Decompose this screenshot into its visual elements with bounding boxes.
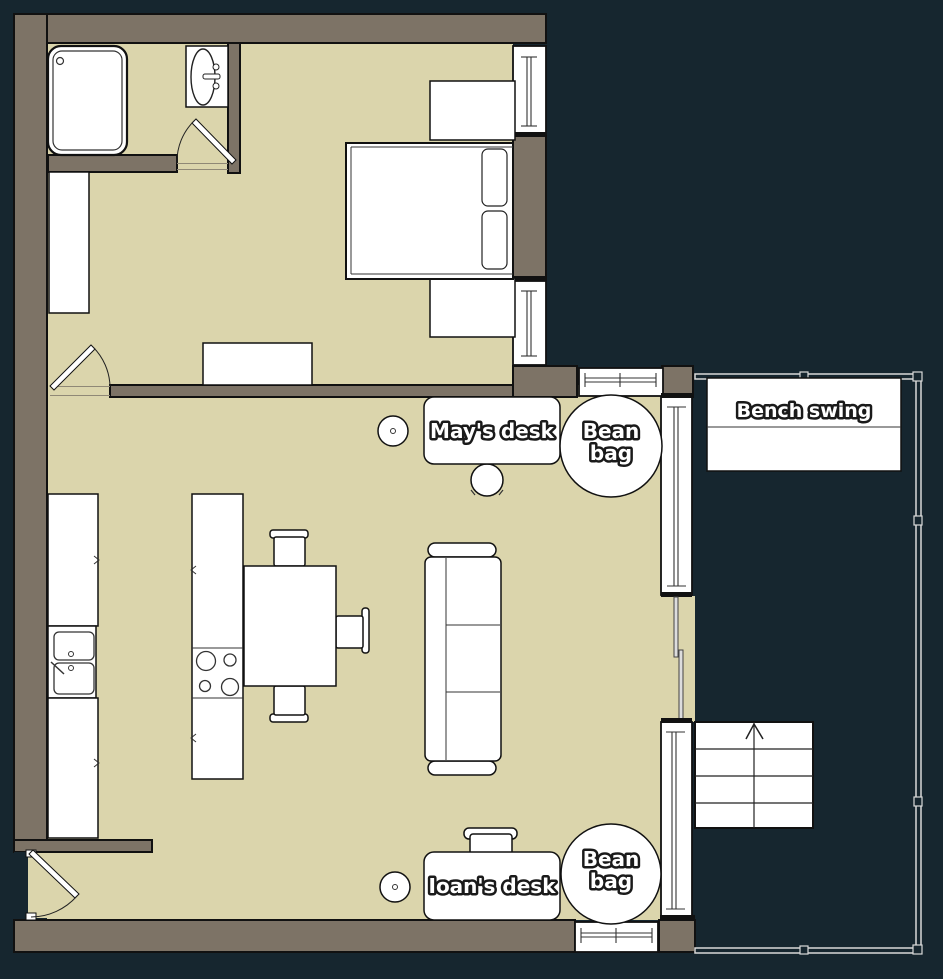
wardrobe[interactable] [49, 172, 89, 313]
bedroom-east-wall-mid [513, 136, 546, 280]
sink-drain [69, 652, 74, 657]
shower[interactable] [48, 46, 127, 155]
stool-dot [391, 429, 396, 434]
bean-bag-bottom[interactable]: Bean bag [561, 824, 661, 924]
dining-table[interactable] [244, 566, 336, 686]
stool-dot [393, 885, 398, 890]
desk-chair-top[interactable] [471, 464, 503, 496]
burner [224, 654, 236, 666]
tap-knob [213, 64, 219, 70]
dresser[interactable] [203, 343, 312, 385]
bedroom-window-1 [513, 46, 546, 134]
bedroom-southeast-block [513, 366, 577, 397]
island-stove[interactable] [191, 494, 243, 779]
left-wall [14, 14, 47, 852]
window-cap [660, 915, 695, 921]
bean-bag-label-line1: Bean [583, 419, 640, 443]
sofa[interactable] [425, 543, 501, 775]
entry-threshold-outside [14, 852, 28, 918]
chair-top[interactable] [270, 530, 308, 566]
pillow [482, 149, 507, 206]
tap-knob [213, 83, 219, 89]
railing-post [914, 797, 922, 806]
bench-swing[interactable]: Bench swing [707, 378, 901, 471]
window-cap [513, 276, 546, 281]
northeast-corner-block [662, 366, 693, 397]
window-cap [661, 718, 692, 723]
railing-post [914, 516, 922, 525]
sofa-armrest [428, 761, 496, 775]
faucet-handle [203, 74, 220, 79]
kitchen-sink[interactable] [48, 626, 96, 698]
nightstand-bottom[interactable] [430, 278, 515, 337]
sink-basin [54, 632, 94, 660]
railing-post [913, 945, 922, 954]
burner [197, 652, 216, 671]
chair-bottom[interactable] [270, 686, 308, 722]
burner [222, 679, 239, 696]
window-cap [661, 592, 692, 597]
ioans-desk-label[interactable]: Ioan's desk [429, 874, 557, 898]
nightstand-top[interactable] [430, 81, 515, 140]
window-cap [513, 132, 546, 137]
southeast-corner-block [659, 920, 695, 952]
floor-plan-svg: May's desk Bean bag Ioan's desk Bean bag [0, 0, 943, 979]
pillow [482, 211, 507, 269]
railing-post [913, 372, 922, 381]
bedroom-window-2 [513, 281, 546, 365]
top-wall [14, 14, 546, 43]
burner [200, 681, 211, 692]
counter-lower[interactable] [48, 698, 98, 838]
sink-drain [69, 666, 74, 671]
shower-drain [57, 58, 64, 65]
sink-basin [54, 663, 94, 694]
bathroom-sink[interactable] [186, 46, 228, 107]
bean-bag-label-line2: bag [590, 441, 632, 465]
bean-bag-label-line1: Bean [583, 847, 640, 871]
floor-plan-canvas: May's desk Bean bag Ioan's desk Bean bag [0, 0, 943, 979]
mays-desk-label[interactable]: May's desk [430, 419, 555, 443]
railing-post [800, 946, 808, 954]
bottom-wall [14, 920, 575, 952]
bean-bag-label-line2: bag [590, 869, 632, 893]
bathroom-south-wall [48, 155, 177, 172]
stairs[interactable] [695, 722, 813, 828]
bed[interactable] [346, 143, 513, 279]
window-cap [661, 393, 693, 398]
bedroom-partition-wall [110, 385, 516, 397]
sofa-armrest [428, 543, 496, 557]
east-window-a [661, 397, 692, 595]
counter-upper[interactable] [48, 494, 98, 626]
bench-swing-label: Bench swing [737, 400, 872, 422]
bean-bag-top[interactable]: Bean bag [560, 395, 662, 497]
